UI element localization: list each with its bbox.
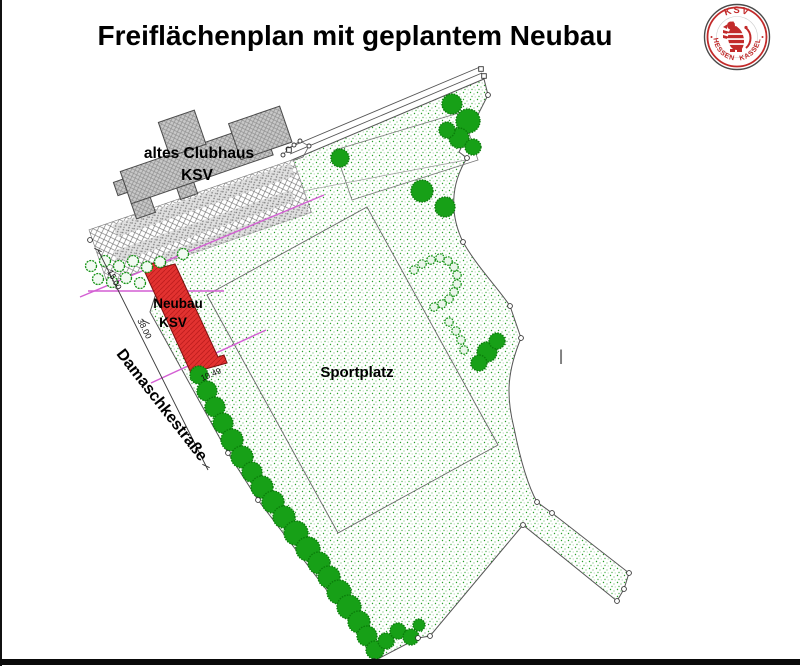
site-plan: 15.00 38.00 10.49 altes Clubhaus KSV Neu…	[0, 0, 800, 668]
neubau-label-line1: Neubau	[153, 296, 203, 311]
clubhouse-label-line2: KSV	[181, 167, 214, 184]
sportplatz-label: Sportplatz	[320, 364, 393, 381]
window-left-border	[0, 0, 2, 668]
clubhouse-label-line1: altes Clubhaus	[144, 145, 254, 162]
text-cursor: I	[558, 346, 564, 369]
neubau-label-line2: KSV	[159, 315, 187, 330]
window-bottom-border	[0, 659, 800, 665]
dimension-label-38: 38.00	[135, 317, 154, 341]
